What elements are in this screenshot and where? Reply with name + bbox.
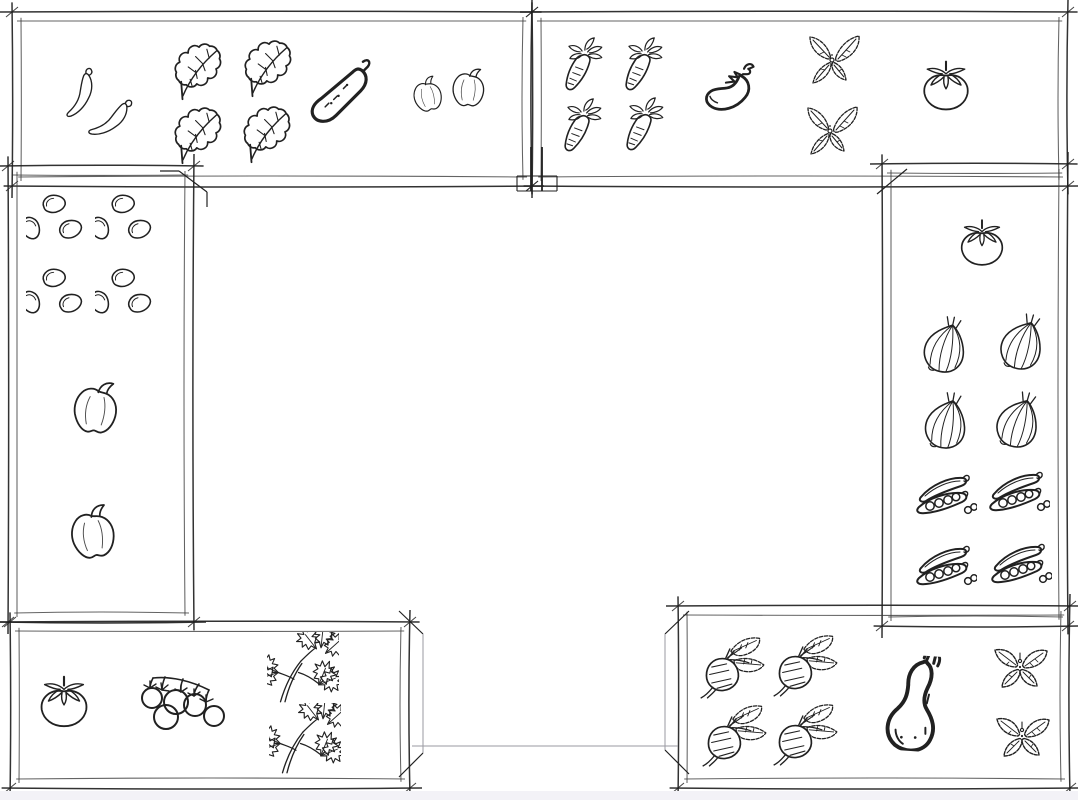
garden-plan-drawing [0,0,1078,800]
bed-frame-line [882,154,883,638]
bed-area-bottom-left[interactable] [10,622,410,788]
bed-frame-line [0,621,420,622]
bed-area-left[interactable] [8,166,194,622]
bed-frame-line [10,612,11,800]
bed-frame-line [670,788,1078,789]
bed-frame-line [520,11,1078,12]
bed-frame-line [870,163,1078,164]
bed-frame-line [0,165,204,166]
bed-frame-line [666,605,1078,606]
bed-area-bottom-right[interactable] [678,606,1070,788]
garden-planner-canvas [0,0,1078,800]
bed-area-top-left[interactable] [12,12,532,186]
bed-frame-line [8,156,9,634]
garden-bed-right[interactable] [870,152,1078,638]
garden-beds [0,0,1078,800]
garden-bed-bottom-right[interactable] [666,594,1078,800]
footer-strip [0,791,1078,800]
bed-frame-line [678,596,679,800]
bed-area-top-right[interactable] [532,12,1068,186]
bed-frame-line [2,788,422,789]
bed-frame-line [0,11,542,12]
garden-bed-left[interactable] [0,154,206,634]
bed-frame-line [532,2,533,198]
garden-bed-bottom-left[interactable] [0,610,422,800]
